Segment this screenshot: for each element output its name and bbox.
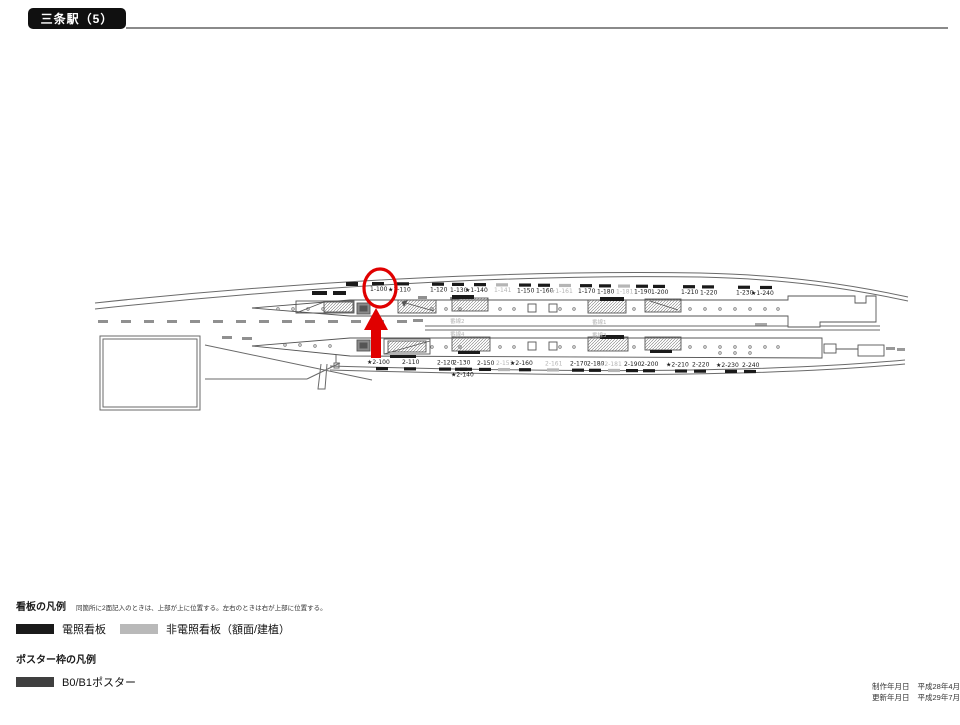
billboard-tick-2-230 [725,370,737,373]
billboard-tick-2-240 [744,370,756,373]
platform-2-far-box [858,345,884,356]
row1-labels: 1-100★1-1101-1201-130★1-1401-1411-1501-1… [370,282,774,297]
created-label: 制作年月日 [872,681,910,692]
stairs-1e [645,299,681,312]
legend-item-nonlit: 非電照看板（額面/建植） [120,621,290,637]
billboard-tick-2-210 [675,369,687,372]
billboard-tick-2-140 [460,368,472,371]
track-label: 番線1 [592,318,607,326]
billboard-label-2-150: 2-150 [477,360,495,367]
stairs-1d [588,297,626,313]
billboard-tick-1-120 [432,283,444,286]
billboard-tick-2-150 [479,368,491,371]
poster-label: B0/B1ポスター [62,674,136,690]
billboard-label-1-141: 1-141 [494,287,512,294]
billboard-label-2-200: 2-200 [641,361,659,368]
kiosk-2 [357,340,370,351]
billboard-tick-1-210 [683,285,695,288]
billboard-label-2-190: 2-190 [624,361,642,368]
billboard-tick-2-160 [519,368,531,371]
kiosk-1 [357,303,370,314]
billboard-tick-1-140 [474,283,486,286]
billboard-label-1-150: 1-150 [517,287,535,294]
billboard-label-1-210: 1-210 [681,289,699,296]
billboard-label-2-160: ★2-160 [510,360,533,367]
billboard-tick-1-160 [538,284,550,287]
billboard-tick-1-230 [738,286,750,289]
billboard-tick-1-170 [580,284,592,287]
billboard-label-2-161: 2-161 [545,360,563,367]
track-number-labels: 番線2番線1番線4番線3 [450,317,607,339]
billboard-tick-1-141 [496,283,508,286]
stairs-1c [452,295,488,311]
billboard-label-2-110: 2-110 [402,359,420,366]
billboard-label-2-230: ★2-230 [716,362,739,369]
billboard-label-1-170: 1-170 [578,288,596,295]
created-date: 平成28年4月 1日 [918,681,960,692]
platform-2 [252,338,822,358]
billboard-tick-1-181 [618,284,630,287]
nonlit-signboard-label: 非電照看板（額面/建植） [166,621,290,637]
billboard-tick-2-151 [498,368,510,371]
legend-signboard-note: 同箇所に2面記入のときは、上部が上に位置する。左右のときは右が上部に位置する。 [76,602,327,612]
billboard-tick-2-170 [572,369,584,372]
legend: 看板の凡例 同箇所に2面記入のときは、上部が上に位置する。左右のときは右が上部に… [16,598,436,690]
track-label: 番線4 [450,330,465,338]
updated-label: 更新年月日 [872,692,910,703]
billboard-tick-1-130 [452,283,464,286]
billboard-tick-2-190 [626,369,638,372]
billboard-tick-2-120 [439,368,451,371]
billboard-label-2-170: 2-170 [570,361,588,368]
billboard-label-1-100: 1-100 [370,286,388,293]
track-label: 番線3 [592,331,607,339]
billboard-label-1-190: 1-190 [634,289,652,296]
legend-item-poster: B0/B1ポスター [16,674,136,690]
billboard-label-1-200: 1-200 [651,289,669,296]
track-label: 番線2 [450,317,465,325]
footer-meta: 制作年月日 平成28年4月 1日 更新年月日 平成29年7月12日 [872,681,960,703]
billboard-tick-2-181 [608,369,620,372]
billboard-label-2-210: ★2-210 [666,361,689,368]
billboard-label-1-161: ★1-161 [550,288,573,295]
billboard-label-2-130: 2-130 [453,360,471,367]
nonlit-signboard-swatch [120,624,158,634]
billboard-label-2-220: 2-220 [692,362,710,369]
billboard-tick-1-200 [653,285,665,288]
billboard-tick-2-180 [589,369,601,372]
row2-labels: ★2-1002-1102-1202-130★2-1402-1502-151★2-… [367,359,760,379]
billboard-tick-2-200 [643,369,655,372]
billboard-tick-1-161 [559,284,571,287]
legend-signboard-heading: 看板の凡例 [16,598,66,613]
billboard-label-1-110: ★1-110 [388,286,411,293]
billboard-label-2-181: ★2-181 [599,361,622,368]
stairs-1b [398,300,436,313]
legend-item-lit: 電照看板 [16,621,106,637]
billboard-label-1-140: ★1-140 [465,287,488,294]
billboard-label-2-240: 2-240 [742,362,760,369]
billboard-label-2-100: ★2-100 [367,359,390,366]
billboard-tick-1-240 [760,286,772,289]
billboard-label-2-120: 2-120 [437,360,455,367]
billboard-tick-1-100 [372,282,384,285]
billboard-tick-1-150 [519,283,531,286]
lit-signboard-label: 電照看板 [62,621,106,637]
billboard-label-1-120: 1-120 [430,287,448,294]
billboard-tick-1-180 [599,284,611,287]
billboard-tick-2-161 [547,368,559,371]
billboard-tick-2-220 [694,370,706,373]
billboard-tick-2-100 [376,367,388,370]
billboard-tick-2-110 [404,367,416,370]
billboard-label-1-180: 1-180 [597,288,615,295]
legend-poster-heading: ポスター枠の凡例 [16,651,436,666]
billboard-label-1-181: 1-181 [616,288,634,295]
platform-2-end-box [824,344,836,353]
billboard-tick-1-220 [702,285,714,288]
lit-signboard-swatch [16,624,54,634]
billboard-tick-1-190 [636,285,648,288]
billboard-tick-1-110 [397,282,409,285]
billboard-label-2-140: ★2-140 [451,372,474,379]
poster-swatch [16,677,54,687]
billboard-label-1-240: ★1-240 [751,290,774,297]
updated-date: 平成29年7月12日 [918,692,960,703]
billboard-label-1-220: 1-220 [700,289,718,296]
